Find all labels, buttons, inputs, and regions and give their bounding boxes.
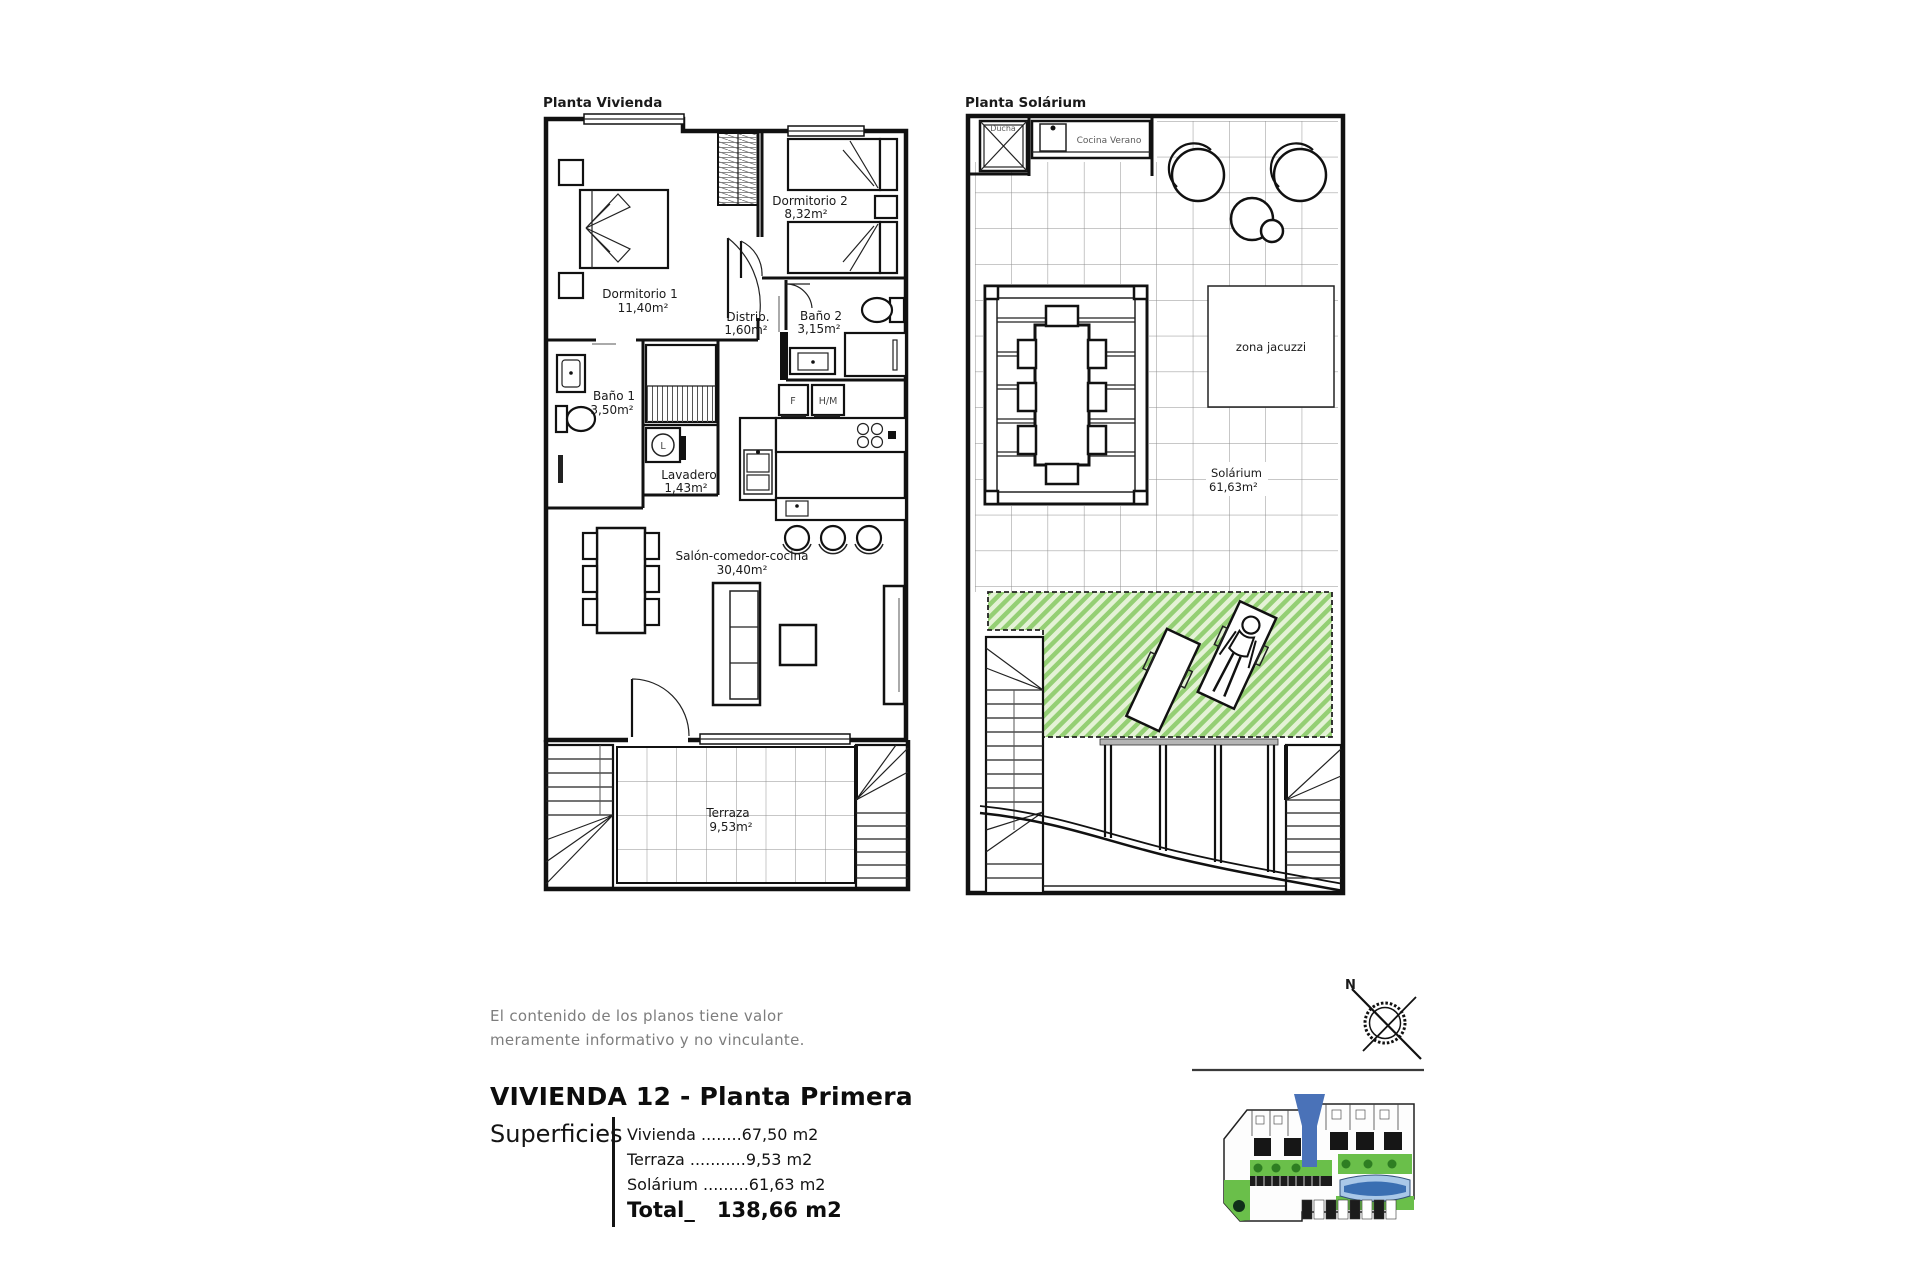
dining-table	[583, 528, 659, 633]
kitchen-counter	[740, 418, 906, 554]
stairs-left	[986, 637, 1043, 893]
room-area-bano1: 3,50m²	[590, 403, 633, 417]
room-area-dormitorio2: 8,32m²	[784, 207, 827, 221]
room-label-lavadero: Lavadero	[661, 468, 717, 482]
solarium-area-label: 61,63m²	[1209, 480, 1258, 494]
sheet-title: VIVIENDA 12 - Planta Primera	[490, 1082, 913, 1111]
room-area-distrib: 1,60m²	[724, 323, 767, 337]
pergola	[983, 284, 1149, 506]
stairs-right	[1286, 745, 1341, 893]
cocina-verano-counter: Cocina Verano	[1032, 121, 1150, 158]
superficies-rows: Vivienda ........67,50 m2 Terraza ......…	[627, 1122, 825, 1197]
stairs-left	[546, 745, 613, 888]
room-label-dormitorio1: Dormitorio 1	[602, 287, 677, 301]
disclaimer-text: El contenido de los planos tiene valor m…	[490, 1004, 805, 1052]
sofa	[713, 583, 760, 705]
site-plan-thumbnail	[1224, 1094, 1414, 1221]
floorplan-sheet: Planta Vivienda	[0, 0, 1920, 1280]
fridge-label: F	[790, 396, 795, 407]
plan-vivienda-title: Planta Vivienda	[543, 95, 662, 111]
room-area-salon: 30,40m²	[717, 563, 768, 577]
washer-label: L	[660, 441, 666, 452]
jacuzzi-area: zona jacuzzi	[1208, 286, 1334, 407]
wardrobe-icon	[718, 133, 758, 205]
room-area-terraza: 9,53m²	[709, 820, 752, 834]
compass-north-icon: N	[1345, 978, 1421, 1059]
room-area-lavadero: 1,43m²	[664, 481, 707, 495]
kitchen-appliances: F H/M	[779, 385, 844, 420]
superficie-vivienda-row: Vivienda ........67,50 m2	[627, 1122, 825, 1147]
stairs-right	[856, 745, 908, 888]
wall-fill	[780, 332, 788, 380]
plan-drawing: Planta Vivienda	[0, 0, 1920, 1280]
plan-vivienda: Planta Vivienda	[543, 95, 908, 889]
total-value: 138,66 m2	[717, 1198, 842, 1222]
room-label-dormitorio2: Dormitorio 2	[772, 194, 847, 208]
plan-solarium: Planta Solárium Ducha Cocina Verano	[965, 95, 1343, 893]
total-row: Total_138,66 m2	[627, 1198, 842, 1222]
room-label-bano2: Baño 2	[800, 309, 842, 323]
ducha-label: Ducha	[990, 124, 1016, 133]
room-label-terraza: Terraza	[705, 806, 749, 820]
room-label-salon: Salón-comedor-cocina	[676, 549, 809, 563]
plan-solarium-title: Planta Solárium	[965, 95, 1086, 111]
superficies-label: Superficies	[490, 1120, 623, 1148]
superficie-terraza-row: Terraza ...........9,53 m2	[627, 1147, 825, 1172]
superficie-solarium-row: Solárium .........61,63 m2	[627, 1172, 825, 1197]
dormitorio1-bed	[559, 160, 668, 298]
wall-strip	[1100, 739, 1278, 745]
room-label-distrib: Distrib.	[726, 310, 769, 324]
room-label-bano1: Baño 1	[593, 389, 635, 403]
washing-machine-icon: L	[646, 428, 686, 462]
total-label: Total_	[627, 1198, 695, 1222]
door-arc	[741, 241, 762, 278]
oven-label: H/M	[819, 396, 838, 407]
ducha-shower: Ducha	[980, 121, 1027, 171]
room-area-dormitorio1: 11,40m²	[618, 301, 669, 315]
disclaimer-line1: El contenido de los planos tiene valor	[490, 1004, 805, 1028]
entrance-door	[628, 679, 689, 748]
room-area-bano2: 3,15m²	[797, 322, 840, 336]
tv-sideboard	[884, 586, 904, 704]
coffee-table	[780, 625, 816, 665]
compass-n-label: N	[1345, 978, 1356, 993]
window-icon	[700, 734, 850, 744]
zona-jacuzzi-label: zona jacuzzi	[1236, 340, 1306, 354]
door-arc	[728, 238, 760, 318]
solarium-name-label: Solárium	[1211, 466, 1262, 480]
closet-icon	[646, 345, 716, 422]
cocina-verano-label: Cocina Verano	[1077, 136, 1142, 146]
disclaimer-line2: meramente informativo y no vinculante.	[490, 1028, 805, 1052]
superficies-divider	[612, 1117, 615, 1227]
